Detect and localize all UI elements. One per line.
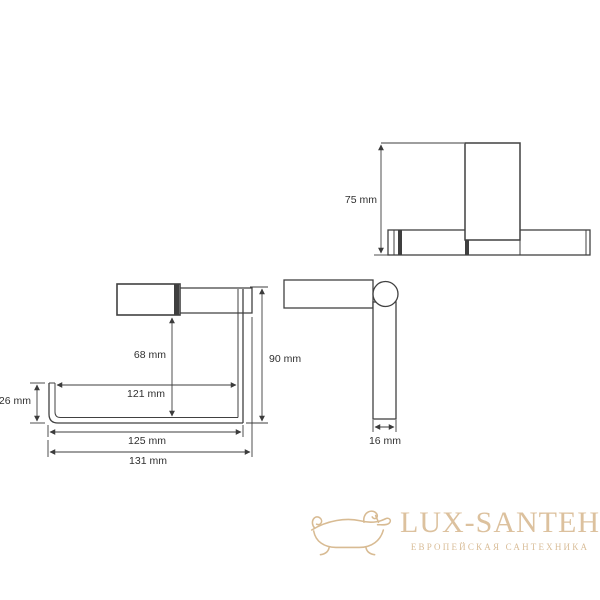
front-view-cover bbox=[117, 284, 180, 315]
dim-16mm bbox=[373, 420, 396, 432]
front-view: 68 mm 121 mm 26 mm 90 mm bbox=[0, 284, 301, 467]
dim-75mm-label: 75 mm bbox=[345, 194, 377, 206]
brand-tagline: ЕВРОПЕЙСКАЯ САНТЕХНИКА bbox=[411, 542, 589, 552]
side-view-wall-arm bbox=[284, 280, 373, 308]
dim-121mm-label: 121 mm bbox=[127, 388, 165, 400]
side-view-drop-bar bbox=[373, 302, 396, 419]
product-dimension-diagram: 75 mm 68 mm 121 mm bbox=[0, 0, 600, 600]
dim-125mm-label: 125 mm bbox=[128, 435, 166, 447]
front-view-cover-band bbox=[174, 284, 179, 315]
brand-name: LUX-SANTEH bbox=[400, 508, 600, 538]
dim-16mm-label: 16 mm bbox=[369, 435, 401, 447]
dim-68mm-label: 68 mm bbox=[134, 349, 166, 361]
brand-logo: LUX-SANTEH ЕВРОПЕЙСКАЯ САНТЕХНИКА bbox=[304, 498, 600, 562]
top-view-wall-plate bbox=[465, 143, 520, 240]
top-view: 75 mm bbox=[345, 143, 590, 255]
dim-90mm bbox=[246, 287, 268, 423]
dim-26mm-label: 26 mm bbox=[0, 395, 31, 407]
top-view-plate-band bbox=[465, 240, 469, 255]
logo-text: LUX-SANTEH ЕВРОПЕЙСКАЯ САНТЕХНИКА bbox=[400, 508, 600, 552]
dim-131mm-label: 131 mm bbox=[129, 455, 167, 467]
front-view-bar bbox=[180, 288, 252, 313]
side-view-pivot bbox=[373, 282, 398, 307]
dim-26mm bbox=[30, 383, 45, 423]
top-view-left-band bbox=[398, 230, 402, 255]
bathtub-icon bbox=[304, 503, 393, 557]
dim-90mm-label: 90 mm bbox=[269, 353, 301, 365]
side-view: 16 mm bbox=[284, 280, 401, 447]
